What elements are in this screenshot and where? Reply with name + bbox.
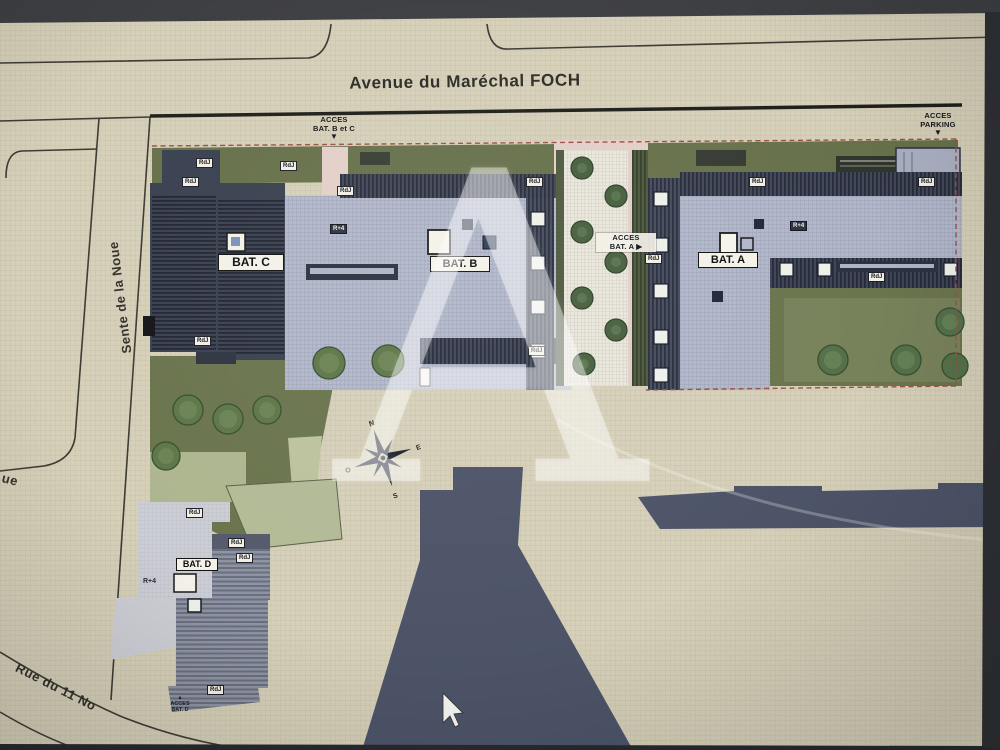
access-label-bat-bc: ACCES BAT. B et C ▼ [298, 116, 370, 140]
floor-tag-rdj: RdJ [645, 254, 662, 264]
building-label-bat-d: BAT. D [176, 558, 218, 571]
central-alley [556, 150, 648, 386]
tree [891, 345, 921, 375]
floor-tag-rdj: RdJ [749, 177, 766, 187]
access-label-parking: ACCES PARKING ▼ [903, 112, 973, 136]
tree [936, 308, 964, 336]
tree [818, 345, 848, 375]
building-label-bat-a: BAT. A [698, 252, 758, 268]
floor-tag-rdj: RdJ [526, 177, 543, 187]
floor-tag-r4: R+4 [143, 578, 156, 585]
floor-tag-rdj: RdJ [236, 553, 253, 563]
strip-structure-1 [360, 152, 390, 165]
site-plan-drawing: N E S O [0, 0, 1000, 750]
floor-tag-rdj: RdJ [182, 177, 199, 187]
bat-a-garden [770, 288, 962, 386]
access-label-bat-d: ▲ ACCES BAT. D [158, 695, 202, 713]
access-d-line2: BAT. D [158, 707, 202, 713]
strip-pergola [836, 156, 902, 172]
floor-tag-rdj: RdJ [186, 508, 203, 518]
tree [152, 442, 180, 470]
building-label-bat-c: BAT. C [218, 254, 284, 271]
floor-tag-rdj: RdJ [196, 158, 213, 168]
tree [942, 353, 968, 379]
access-a-line2: BAT. A ▶ [598, 243, 654, 252]
bat-a-west-terraces [648, 178, 680, 390]
bat-b-balcony-bar [306, 264, 398, 280]
floor-tag-rdj: RdJ [868, 272, 885, 282]
tree [372, 345, 404, 377]
site-plan-photo: N E S O Avenue du Maréchal FOCH ACCES BA… [0, 0, 1000, 750]
tree [605, 251, 627, 273]
tree [605, 319, 627, 341]
down-arrow-icon: ▼ [903, 129, 973, 136]
floor-tag-rdj: RdJ [280, 161, 297, 171]
bat-b-east-terraces [526, 198, 554, 390]
tree [571, 287, 593, 309]
floor-tag-rdj: RdJ [337, 186, 354, 196]
tree [573, 353, 595, 375]
building-label-bat-b: BAT. B [430, 256, 490, 272]
tree [213, 404, 243, 434]
bat-a-south-terraces [770, 258, 962, 288]
tree [571, 157, 593, 179]
photo-border-right [982, 12, 1000, 750]
tree [605, 185, 627, 207]
strip-structure-2 [696, 150, 746, 166]
tree [173, 395, 203, 425]
floor-tag-rdj: RdJ [194, 336, 211, 346]
floor-tag-rdj: RdJ [918, 177, 935, 187]
floor-tag-rdj: RdJ [228, 538, 245, 548]
down-arrow-icon: ▼ [298, 133, 370, 140]
access-label-bat-a: ACCES BAT. A ▶ [596, 233, 656, 252]
floor-tag-r4: R+4 [330, 224, 347, 234]
floor-tag-rdj: RdJ [207, 685, 224, 695]
tree [253, 396, 281, 424]
floor-tag-r4: R+4 [790, 221, 807, 231]
floor-tag-rdj: RdJ [528, 346, 545, 356]
tree [571, 221, 593, 243]
tree [313, 347, 345, 379]
